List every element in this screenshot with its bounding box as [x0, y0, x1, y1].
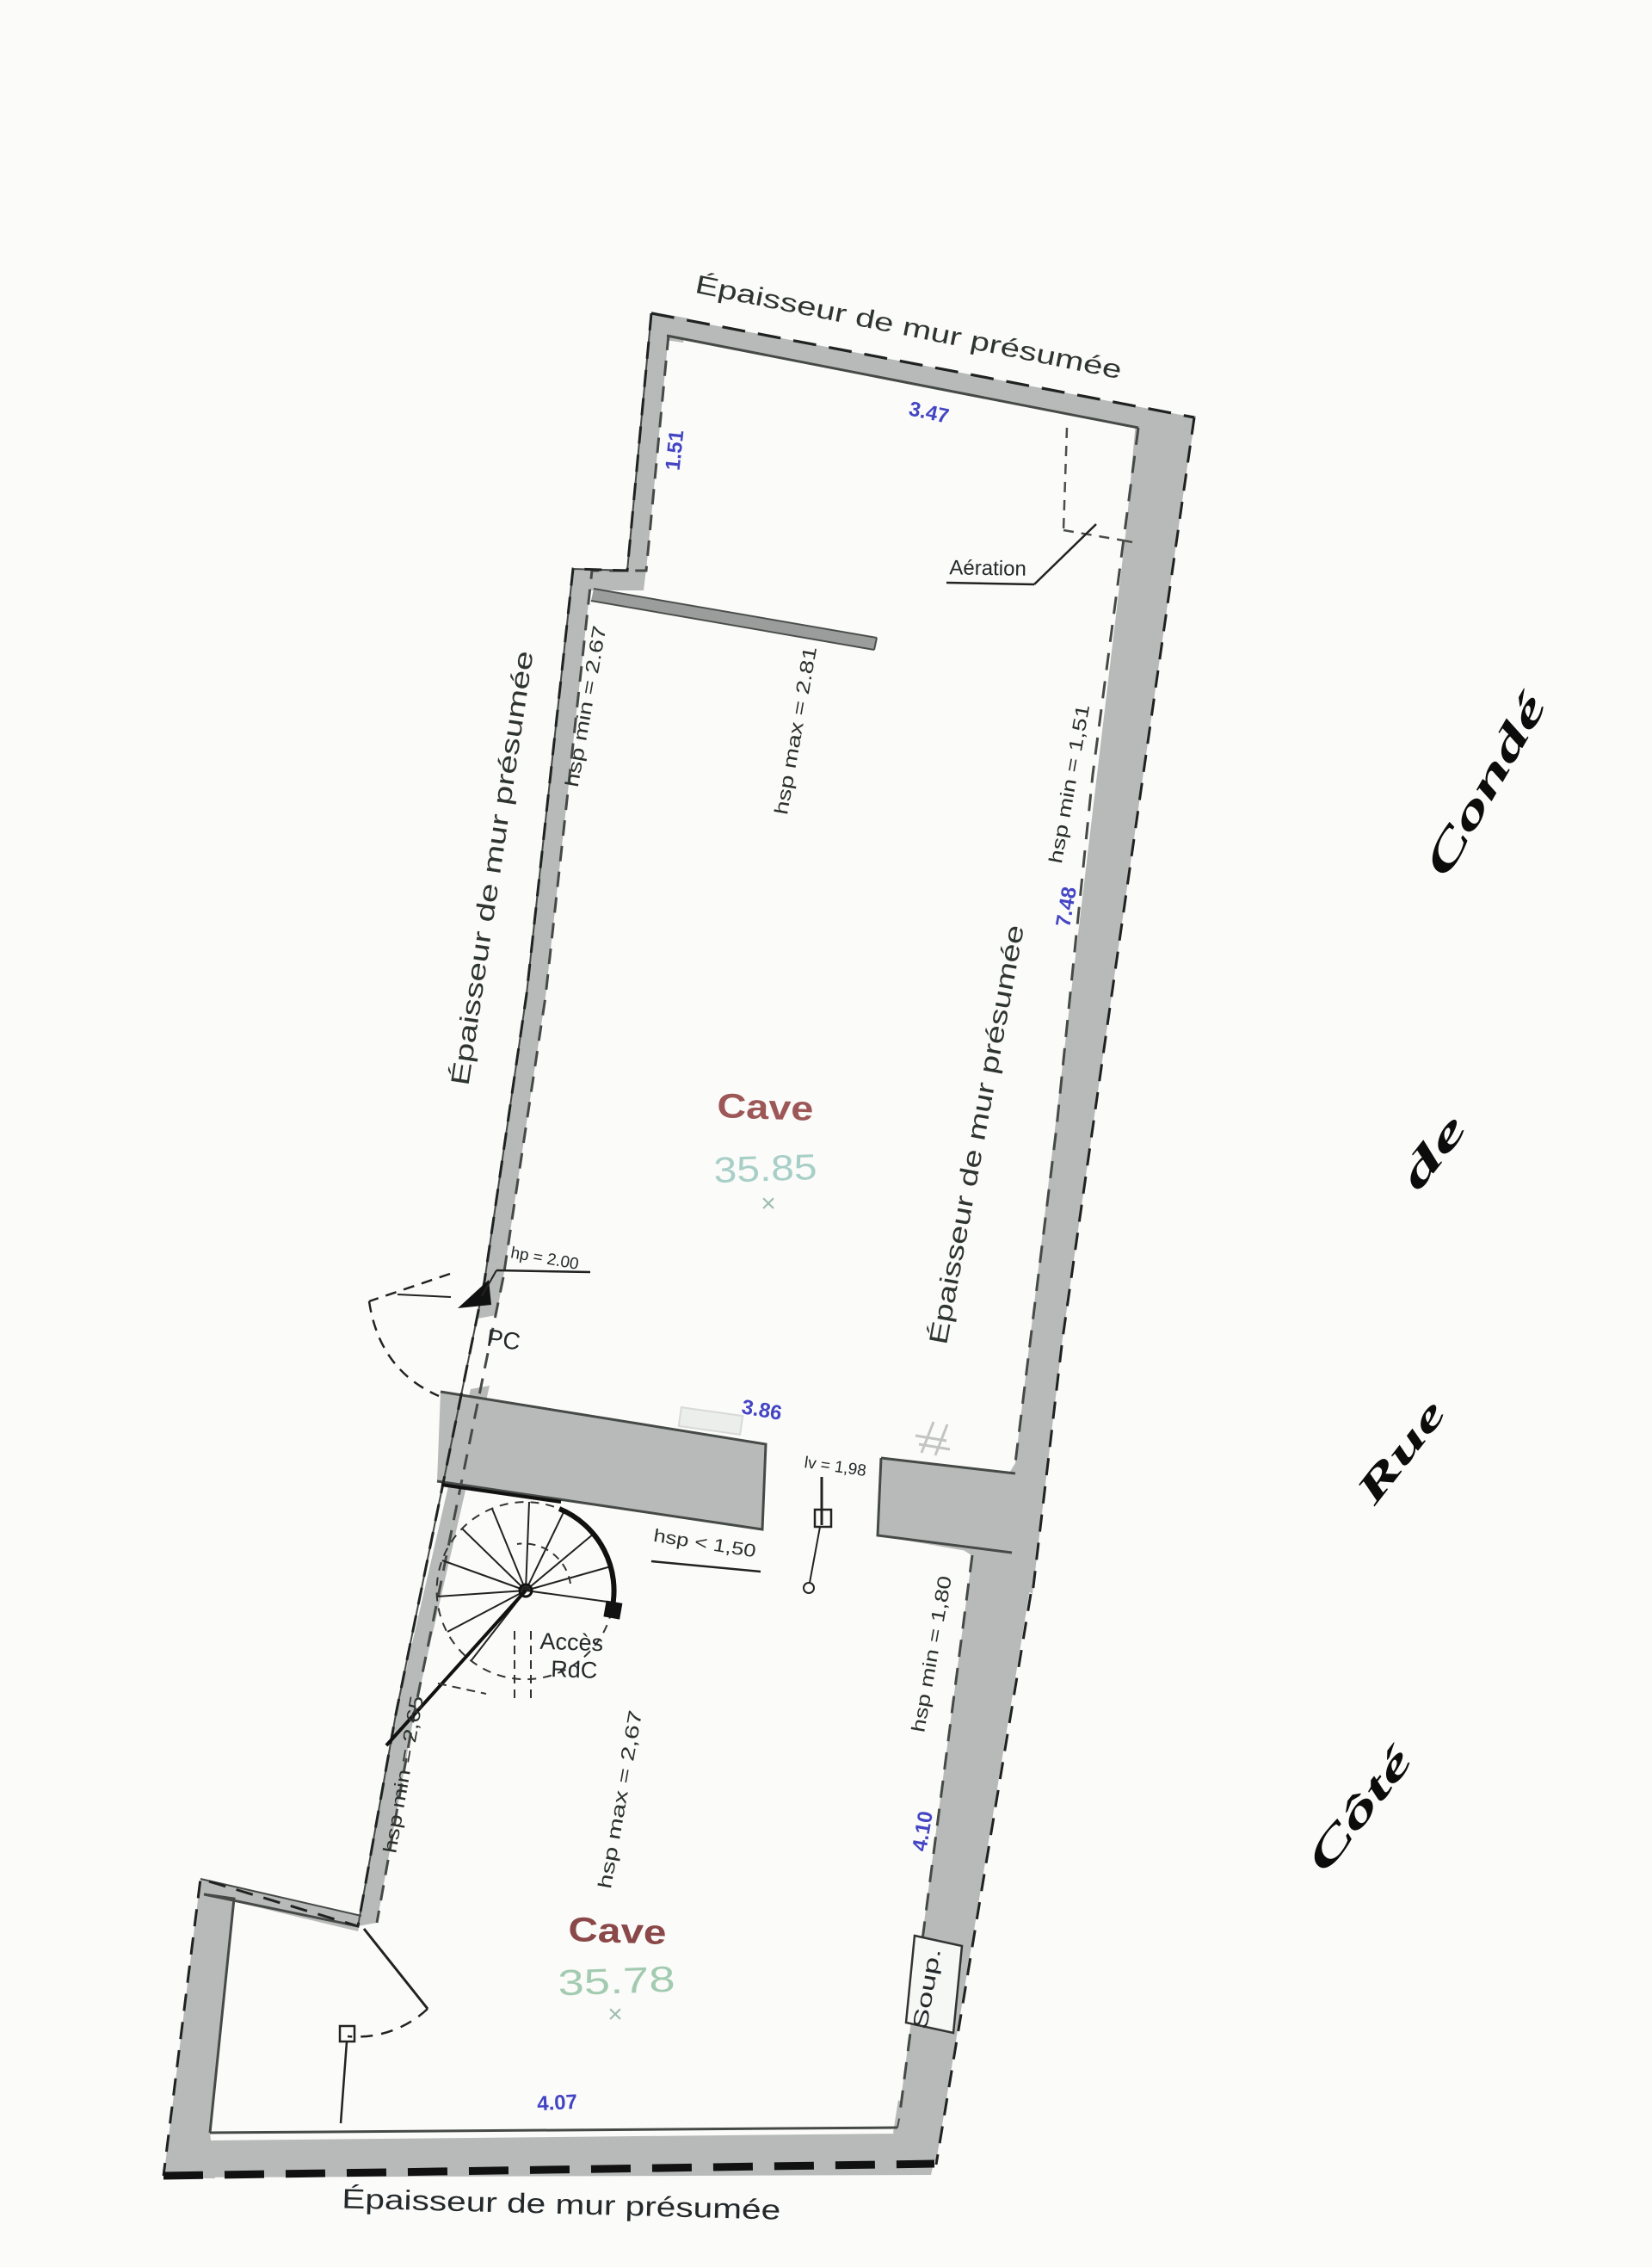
svg-text:RdC: RdC: [551, 1656, 598, 1683]
svg-text:Cave: Cave: [717, 1087, 814, 1128]
svg-text:Aération: Aération: [949, 556, 1026, 581]
svg-text:Accès: Accès: [539, 1628, 604, 1657]
svg-text:×: ×: [607, 2000, 623, 2029]
svg-text:Cave: Cave: [568, 1911, 667, 1952]
svg-text:×: ×: [761, 1189, 776, 1218]
svg-text:35.85: 35.85: [713, 1146, 818, 1190]
svg-text:4.07: 4.07: [537, 2091, 578, 2116]
svg-text:1.51: 1.51: [662, 429, 689, 472]
svg-text:PC: PC: [485, 1325, 522, 1356]
svg-text:35.78: 35.78: [558, 1959, 676, 2004]
